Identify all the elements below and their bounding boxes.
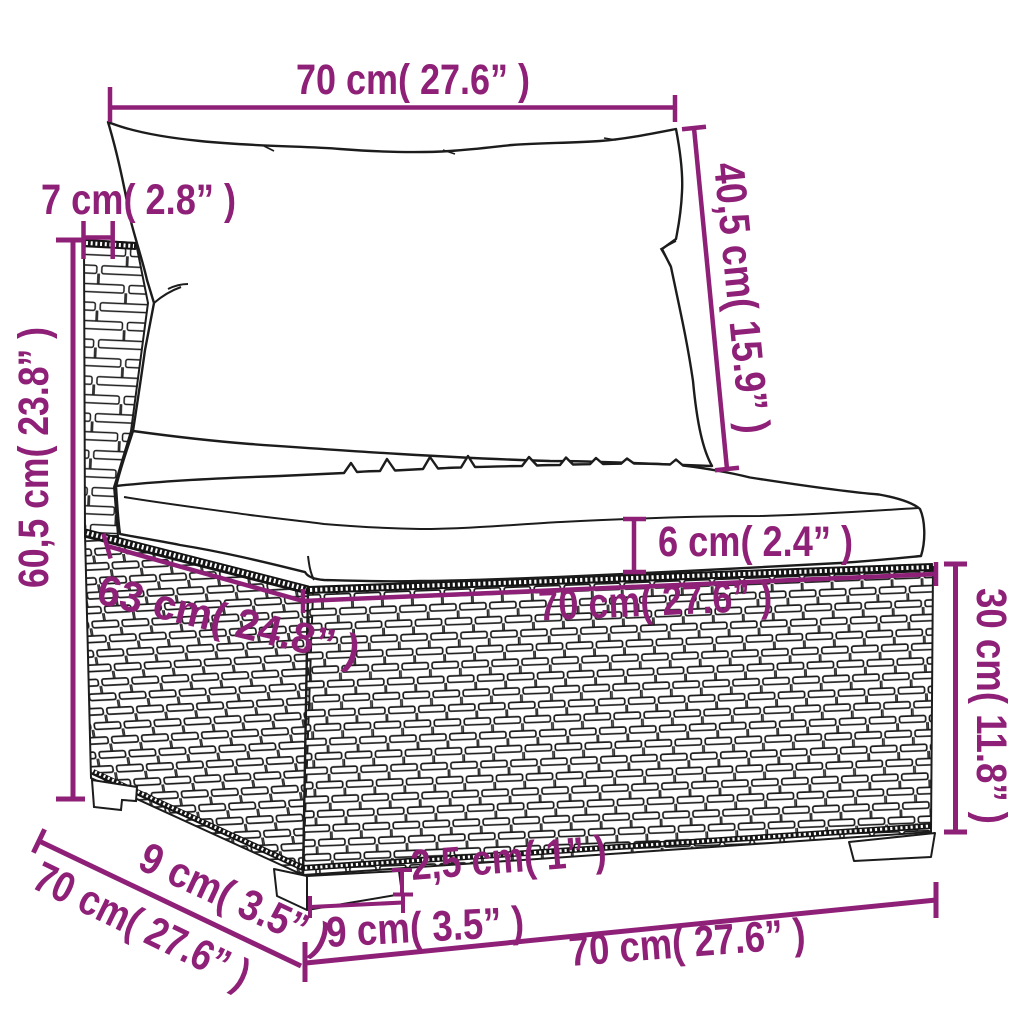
svg-text:70 cm( 27.6” ): 70 cm( 27.6” ) [537, 572, 773, 630]
svg-text:60,5 cm( 23.8” ): 60,5 cm( 23.8” ) [10, 327, 58, 588]
svg-text:70 cm( 27.6” ): 70 cm( 27.6” ) [296, 56, 530, 104]
svg-text:7 cm( 2.8” ): 7 cm( 2.8” ) [41, 176, 236, 224]
svg-text:6 cm( 2.4” ): 6 cm( 2.4” ) [658, 518, 853, 566]
svg-text:30 cm( 11.8” ): 30 cm( 11.8” ) [967, 588, 1015, 824]
